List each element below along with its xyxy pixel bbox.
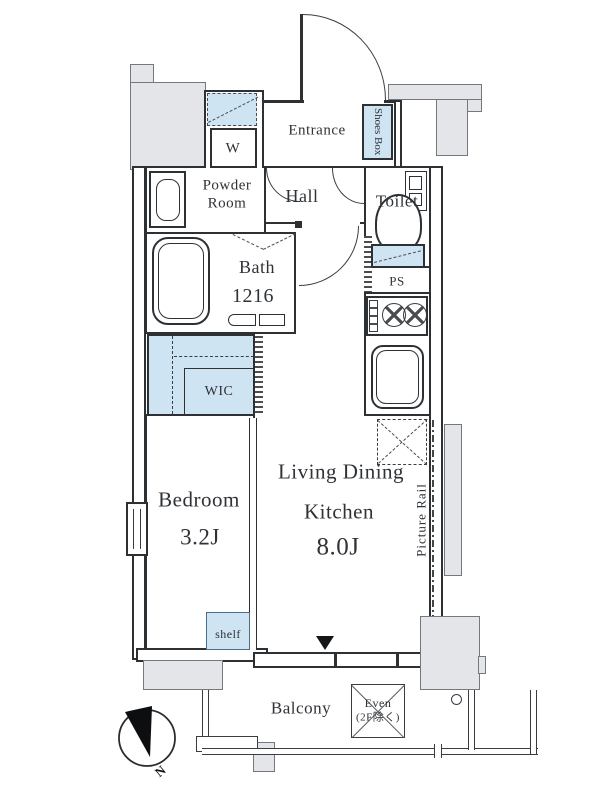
balcony-rail-right [468, 690, 475, 750]
picture-rail-line [432, 420, 434, 620]
entrance-right-wall [394, 100, 402, 168]
balcony-rail-divider [434, 744, 442, 758]
entry-direction-marker [316, 636, 334, 650]
wall-mass-topright [436, 99, 468, 156]
wall-mass-right-pillar-tab [478, 656, 486, 674]
bathtub-inner [158, 243, 204, 319]
toilet-shelf-box-1 [409, 176, 422, 190]
label-bedroom: Bedroom [158, 490, 240, 511]
left-wall [132, 166, 146, 660]
ldk-door-hinge [295, 221, 302, 228]
label-balcony: Balcony [271, 700, 331, 717]
balcony-window-mullion-1 [334, 654, 337, 666]
compass: N [112, 702, 184, 782]
wall-mass-bottomleft [143, 660, 223, 690]
kitchen-sink-inner [376, 350, 419, 404]
label-eaves-line2: (2F除く) [356, 713, 400, 724]
label-picture-rail: Picture Rail [415, 483, 428, 557]
wall-mass-right-pillar [420, 616, 480, 690]
bedroom-window-glass [133, 509, 141, 549]
floor-plan: Shoes Box N Entrance Hall Powder [0, 0, 600, 800]
label-bath-size: 1216 [232, 286, 274, 306]
label-wic: WIC [205, 385, 234, 399]
entrance-top-wall-right [384, 100, 396, 103]
label-washer: W [226, 142, 241, 157]
bedroom-sliding-partition [249, 418, 257, 650]
shoes-box: Shoes Box [362, 104, 393, 160]
wic-dashed-divider-v [172, 336, 173, 414]
label-powder-line2: Room [208, 197, 247, 212]
wall-mass-topleft-tab [130, 64, 154, 84]
label-ldk-line1: Living Dining [278, 462, 404, 483]
powder-sink-bowl [156, 179, 180, 221]
bath-counter-2 [259, 314, 285, 326]
label-bath: Bath [239, 258, 275, 276]
label-toilet: Toilet [376, 193, 418, 210]
ldk-door-arc [299, 226, 359, 286]
label-ps: PS [389, 275, 404, 288]
balcony-window-mullion-2 [396, 654, 399, 666]
balcony-rail-bottom [202, 748, 538, 755]
label-eaves-line1: Even [365, 697, 392, 709]
stove-burner-right [403, 303, 427, 327]
label-entrance: Entrance [288, 124, 345, 139]
wall-mass-top-bar [388, 84, 482, 100]
balcony-drain [451, 694, 462, 705]
entrance-top-wall-left [262, 100, 304, 103]
wall-mass-right-strip [444, 424, 462, 576]
balcony-rail-end-cap [530, 690, 537, 754]
label-hall: Hall [286, 187, 319, 205]
wic-dashed-divider-h [174, 356, 254, 357]
label-ldk-line2: Kitchen [304, 502, 374, 523]
label-shelf: shelf [215, 628, 241, 640]
stove-control-panel [369, 300, 378, 332]
wall-mass-topleft [130, 82, 206, 170]
label-bedroom-size: 3.2J [180, 526, 220, 549]
bath-counter-1 [228, 314, 256, 326]
label-ldk-size: 8.0J [317, 535, 360, 560]
compass-needle [125, 706, 152, 757]
hatched-wall-wic [255, 336, 263, 414]
front-door-swing-arc [303, 14, 386, 100]
label-powder-line1: Powder [203, 179, 252, 194]
